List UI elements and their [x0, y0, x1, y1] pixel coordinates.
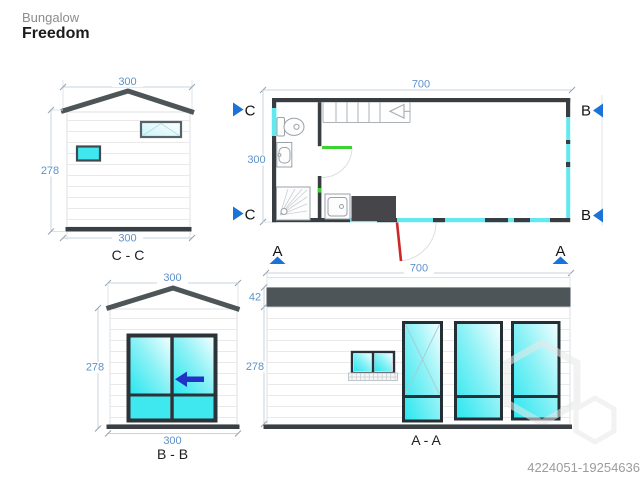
bb-dim-top: 300 — [163, 272, 181, 284]
plan-dim-top: 700 — [412, 79, 430, 91]
bb-sliding-door — [129, 336, 216, 421]
bath-sink — [277, 143, 292, 168]
aa-tall-window-1 — [456, 323, 502, 420]
plan-left-window — [272, 108, 277, 136]
bb-base — [107, 425, 240, 430]
aa-dim-top: 700 — [410, 263, 428, 275]
section-b-bottom-triangle-icon — [593, 209, 603, 223]
partition-door-stop — [318, 188, 322, 193]
aa-fascia-band — [267, 288, 571, 308]
aa-dim-left: 278 — [246, 361, 264, 373]
cc-dim-top: 300 — [118, 76, 136, 88]
stairs-direction-arrow-icon — [390, 105, 410, 119]
section-c-bottom-triangle-icon — [233, 207, 244, 221]
cc-dim-bottom: 300 — [118, 233, 136, 245]
aa-flower-box — [349, 373, 398, 381]
model-name: Freedom — [22, 25, 90, 42]
plan-wall-top — [272, 98, 570, 102]
plan-partition-lower — [318, 176, 322, 218]
header: Bungalow Freedom — [22, 10, 90, 42]
kitchen-sink — [325, 194, 350, 219]
shower-drain — [281, 209, 287, 215]
document-code: 4224051-19254636 — [527, 460, 640, 475]
cc-base — [66, 227, 192, 232]
plan-right-glazing — [566, 117, 570, 220]
entry-door-swing — [401, 223, 436, 262]
view-cc: 300 278 300 C - C — [39, 76, 195, 263]
cc-roof — [61, 91, 194, 113]
cc-dim-left: 278 — [41, 165, 59, 177]
aa-tall-window-2 — [513, 323, 560, 420]
view-aa: 700 42 278 — [244, 263, 614, 449]
bb-label: B - B — [157, 446, 188, 462]
stair-treads — [336, 102, 380, 122]
cc-small-window — [77, 147, 100, 161]
toilet — [277, 118, 304, 137]
aa-glazed-door — [404, 323, 442, 422]
blueprint-page: Bungalow Freedom 300 278 300 C - C — [0, 0, 642, 480]
aa-dim-fascia: 42 — [249, 292, 261, 304]
floor-plan: 700 300 — [233, 78, 603, 264]
bb-roof — [107, 288, 240, 310]
shower — [277, 187, 311, 220]
aa-roof-edge — [267, 278, 570, 288]
cc-upper-window — [141, 122, 181, 137]
plan-dim-left: 300 — [247, 154, 265, 166]
cc-label: C - C — [112, 247, 145, 263]
section-c-top-triangle-icon — [233, 103, 244, 117]
bb-dim-left: 278 — [86, 362, 104, 374]
section-b-top-label: B — [581, 103, 591, 120]
aa-label: A - A — [411, 432, 441, 448]
section-b-top-triangle-icon — [593, 104, 603, 118]
bath-door-swing — [322, 148, 352, 178]
watermark-hexagon-small — [576, 398, 614, 442]
section-c-bottom-label: C — [245, 207, 256, 224]
kitchen-counter — [352, 196, 397, 221]
view-bb: 300 278 300 B - B — [84, 272, 241, 462]
aa-small-window — [352, 352, 394, 373]
section-b-bottom-label: B — [581, 207, 591, 224]
brand-name: Bungalow — [22, 10, 80, 25]
entry-door-leaf — [397, 223, 401, 262]
plan-partition-upper — [318, 102, 322, 146]
stairs — [323, 102, 410, 122]
section-c-top-label: C — [245, 103, 256, 120]
blueprint-canvas: Bungalow Freedom 300 278 300 C - C — [0, 0, 642, 480]
aa-base — [264, 425, 573, 430]
